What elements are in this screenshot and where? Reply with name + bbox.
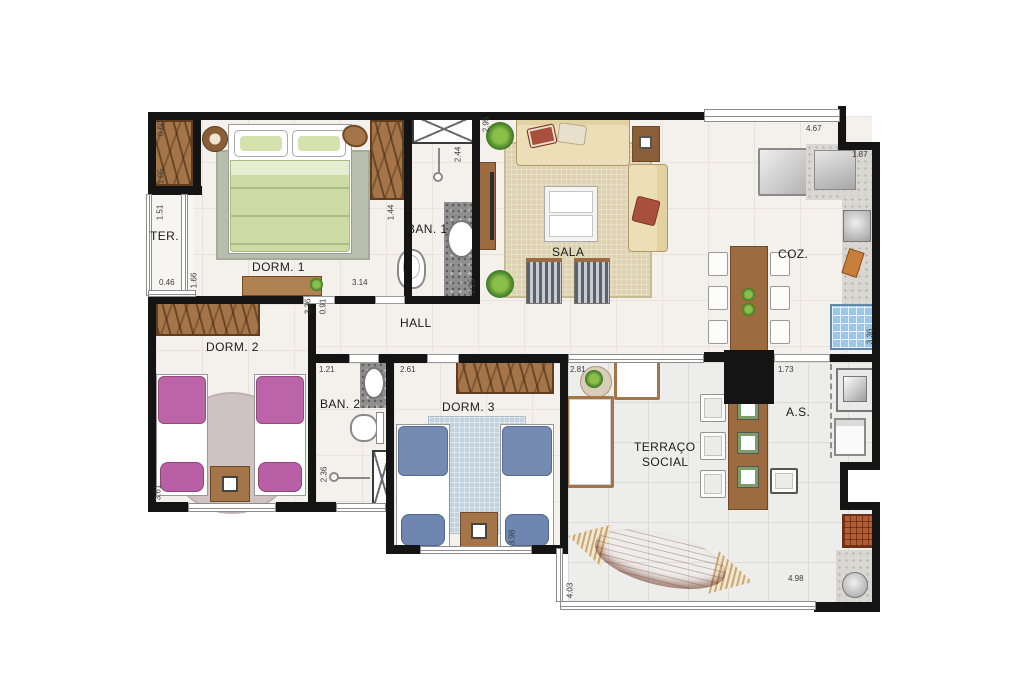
dining-table	[730, 246, 768, 358]
bed-pouf	[258, 462, 302, 492]
terrace-armchair	[614, 360, 660, 400]
wall-segment	[404, 296, 480, 304]
exterior-notch	[848, 470, 878, 502]
wardrobe	[456, 360, 554, 394]
wall-segment	[148, 112, 704, 120]
room-label-dorm3: DORM. 3	[442, 400, 495, 414]
wall-segment	[308, 502, 336, 512]
wardrobe	[156, 302, 260, 336]
laundry-sink-cabinet	[834, 418, 866, 456]
wall-segment	[830, 354, 880, 362]
dimension-label: 0.60	[156, 121, 165, 137]
wall-segment	[334, 296, 376, 304]
table-plant-icon	[742, 288, 755, 301]
wall-segment	[148, 296, 304, 304]
dining-chair	[708, 286, 728, 310]
laundry-tank	[842, 572, 868, 598]
door	[427, 354, 459, 363]
terrace-railing	[556, 548, 563, 602]
room-label-as: A.S.	[786, 405, 810, 419]
wall-segment	[814, 602, 880, 612]
dimension-label: 2.81	[570, 365, 586, 374]
wall-segment	[386, 354, 394, 512]
terrace-door	[181, 194, 188, 292]
wall-segment	[704, 352, 726, 362]
dimension-label: 1.51	[155, 205, 164, 221]
clock-icon	[639, 136, 652, 149]
wall-segment	[148, 502, 188, 512]
dimension-label: 3.98	[507, 530, 516, 546]
wardrobe	[370, 120, 404, 200]
dimension-label: 2.61	[400, 365, 416, 374]
plant-icon	[310, 278, 323, 291]
room-label-ter: TER.	[150, 229, 179, 243]
dimension-label: 1.66	[189, 273, 198, 289]
terrace-railing	[560, 601, 816, 610]
cooktop	[814, 150, 856, 190]
dimension-label: 3.36	[865, 329, 874, 345]
washer-glass	[843, 376, 867, 402]
room-label-ban2: BAN. 2	[320, 397, 360, 411]
dimension-label: 4.67	[806, 124, 822, 133]
window	[188, 503, 276, 512]
barbecue-grill	[842, 514, 874, 548]
bed-blanket	[398, 426, 448, 476]
bed-blanket	[256, 376, 304, 424]
wall-segment	[458, 354, 568, 363]
dimension-label: 2.95	[481, 117, 490, 133]
bar-tray	[737, 466, 759, 488]
bed-blanket	[230, 160, 350, 252]
dining-chair	[708, 320, 728, 344]
bed-blanket	[502, 426, 552, 476]
room-label-hall: HALL	[400, 316, 432, 330]
nightstand-deco	[222, 476, 238, 492]
wall-segment	[308, 354, 350, 363]
window	[336, 503, 386, 512]
bathroom-sink	[363, 367, 385, 399]
room-label-terraco-line1: TERRAÇO	[634, 440, 695, 454]
bar-stool	[700, 394, 726, 422]
table-plant-icon	[742, 303, 755, 316]
wall-segment	[872, 502, 880, 612]
dimension-label: 0.46	[159, 278, 175, 287]
wall-segment	[148, 296, 156, 512]
room-label-ban1: BAN. 1	[407, 222, 447, 236]
shower-head-icon	[329, 472, 339, 482]
wall-segment	[404, 112, 412, 304]
dimension-label: 1.87	[852, 150, 868, 159]
shower-rod	[438, 148, 440, 174]
coffee-table-tray	[549, 191, 593, 213]
wall-segment	[472, 112, 480, 304]
coffee-table-tray	[549, 215, 593, 237]
room-label-coz: COZ.	[778, 247, 808, 261]
room-label-dorm1: DORM. 1	[252, 260, 305, 274]
dimension-label: 3.61	[153, 485, 162, 501]
dimension-label: 1.25	[467, 279, 476, 295]
dining-chair	[770, 286, 790, 310]
elevator-shaft	[724, 350, 774, 404]
dimension-label: 1.05	[156, 169, 165, 185]
bar-stool	[770, 468, 798, 494]
bed-pouf	[160, 462, 204, 492]
dimension-label: 4.03	[565, 583, 574, 599]
dimension-label: 3.14	[352, 278, 368, 287]
sofa-pillow	[557, 122, 588, 146]
wall-segment	[872, 362, 880, 468]
refrigerator	[758, 148, 808, 196]
bar-tray	[737, 432, 759, 454]
dimension-label: 2.36	[319, 467, 328, 483]
dimension-label: 1.73	[778, 365, 794, 374]
shower-head-icon	[433, 172, 443, 182]
armchair	[526, 258, 562, 304]
dimension-label: 4.98	[788, 574, 804, 583]
window	[420, 546, 532, 554]
floor-plan: TER. DORM. 1 BAN. 1 SALA COZ. HALL DORM.…	[0, 0, 1024, 700]
shower-rod	[336, 477, 370, 479]
sliding-door	[568, 354, 704, 363]
bar-stool	[700, 432, 726, 460]
wall-segment	[148, 112, 156, 194]
bar-stool	[700, 470, 726, 498]
dimension-label: 1.44	[386, 205, 395, 221]
dimension-label: 3.36	[303, 299, 312, 315]
bed-pouf	[401, 514, 445, 546]
room-label-sala: SALA	[552, 245, 584, 259]
wall-segment	[386, 545, 420, 554]
stove-burners	[843, 210, 871, 242]
plant-icon	[585, 370, 603, 388]
door	[349, 354, 379, 363]
wall-segment	[193, 112, 201, 192]
curtain-divider	[830, 364, 834, 458]
terrace-railing	[146, 194, 152, 296]
toilet	[350, 414, 378, 442]
window	[704, 109, 840, 122]
dimension-label: 2.44	[453, 147, 462, 163]
terrace-railing	[148, 290, 196, 297]
nightstand-deco	[471, 523, 487, 539]
wall-segment	[560, 354, 568, 554]
plant-icon	[486, 270, 514, 298]
room-label-terraco-line2: SOCIAL	[642, 455, 688, 469]
tv-screen	[490, 172, 494, 240]
armchair	[574, 258, 610, 304]
toilet-tank	[376, 412, 384, 444]
room-label-dorm2: DORM. 2	[206, 340, 259, 354]
bed-blanket	[158, 376, 206, 424]
door	[774, 354, 830, 362]
dining-chair	[770, 320, 790, 344]
pillow-inner	[240, 136, 282, 151]
dining-chair	[708, 252, 728, 276]
door	[375, 296, 405, 304]
dimension-label: 1.21	[319, 365, 335, 374]
terrace-sofa	[566, 396, 614, 488]
pillow-inner	[298, 136, 340, 151]
wall-segment	[308, 296, 316, 512]
dimension-label: 0.91	[318, 299, 327, 315]
round-side-table	[202, 126, 228, 152]
